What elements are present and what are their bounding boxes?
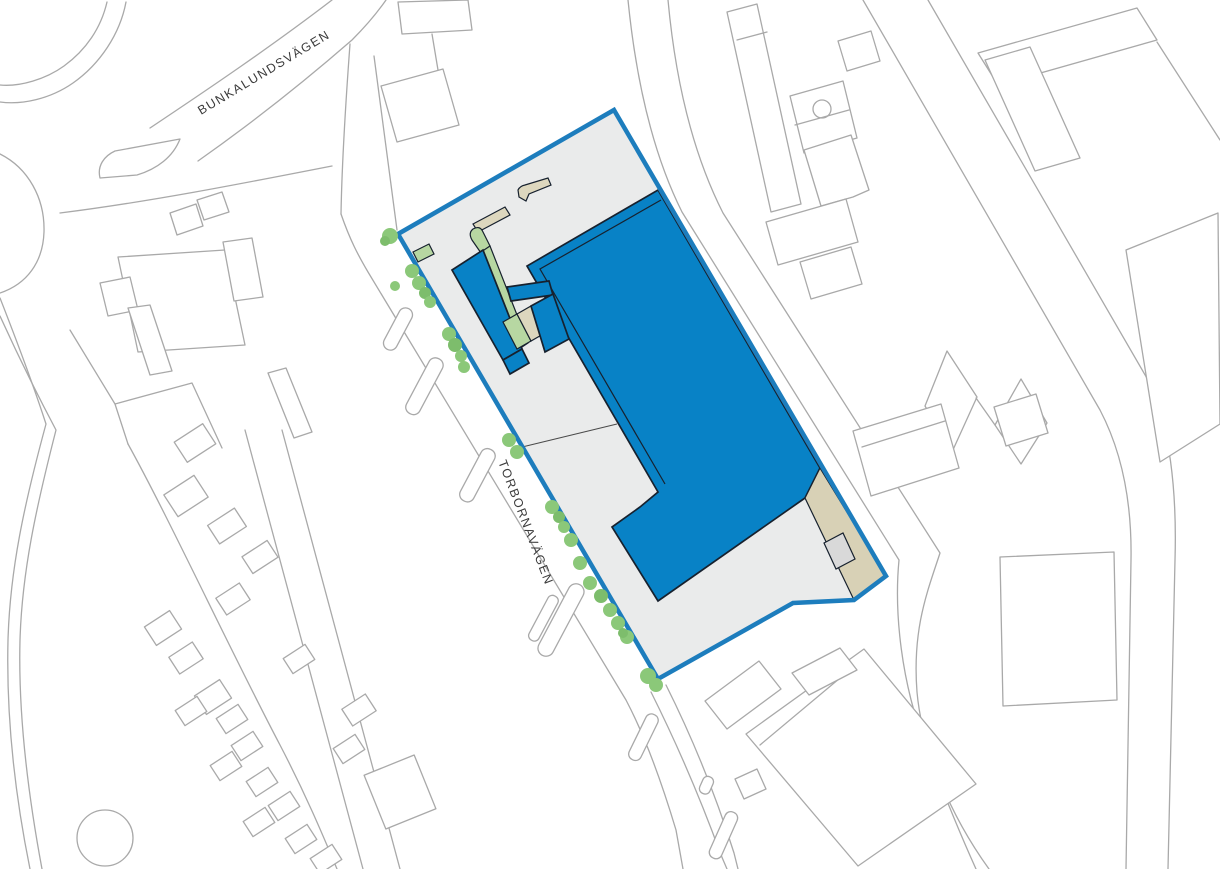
villa-outline xyxy=(342,694,376,726)
tree-icon xyxy=(611,616,625,630)
tree-icon xyxy=(380,236,390,246)
road-line xyxy=(0,316,56,869)
building-outline xyxy=(398,0,472,34)
tree-icon xyxy=(583,576,597,590)
site-plan-canvas: BUNKALUNDSVÄGEN TORBORNAVÄGEN xyxy=(0,0,1220,869)
road-line xyxy=(0,2,126,103)
tree-icon xyxy=(564,533,578,547)
tree-icon xyxy=(448,338,462,352)
parking-island xyxy=(707,810,739,861)
tree-icon xyxy=(618,628,628,638)
tree-icon xyxy=(594,589,608,603)
villa-outline xyxy=(333,734,365,763)
parking-island xyxy=(627,712,661,763)
building-outline xyxy=(727,4,801,212)
round-feature xyxy=(77,810,133,866)
villa-outline xyxy=(216,583,250,615)
building-outline xyxy=(268,368,312,438)
building-outline xyxy=(735,769,766,799)
villa-outline xyxy=(174,424,216,463)
villa-outline xyxy=(164,475,208,516)
building-outline xyxy=(994,394,1048,446)
tree-icon xyxy=(424,296,436,308)
villa-outline xyxy=(208,508,247,544)
tree-icon xyxy=(458,361,470,373)
building-outline xyxy=(170,204,203,235)
villa-outline xyxy=(169,642,203,674)
villa-outline xyxy=(283,644,315,673)
building-link-line xyxy=(432,34,438,70)
tree-icon xyxy=(405,264,419,278)
parking-island xyxy=(381,305,415,352)
building-outline xyxy=(1126,213,1220,462)
tree-icon xyxy=(573,556,587,570)
context-buildings-west xyxy=(100,192,312,438)
traffic-island xyxy=(99,139,180,178)
tree-icon xyxy=(502,433,516,447)
site-plan-drawing: BUNKALUNDSVÄGEN TORBORNAVÄGEN xyxy=(0,0,1220,869)
villa-outline xyxy=(285,824,317,853)
road-line xyxy=(341,44,350,214)
villa-outline xyxy=(216,704,248,733)
street-label-bunkalundsvagen: BUNKALUNDSVÄGEN xyxy=(195,28,332,118)
villa-outline xyxy=(144,611,181,646)
tree-icon xyxy=(455,350,467,362)
road-line xyxy=(0,298,46,869)
parking-island xyxy=(457,446,497,504)
villa-outline xyxy=(242,540,278,573)
site-area xyxy=(398,110,886,679)
road-line xyxy=(150,0,332,128)
building-link-line xyxy=(976,398,995,425)
building-outline xyxy=(838,31,880,71)
building-outline xyxy=(1000,552,1117,706)
tree-icon xyxy=(649,678,663,692)
building-outline xyxy=(746,649,976,866)
road-line xyxy=(0,2,107,85)
building-outline xyxy=(853,404,959,496)
villa-outline xyxy=(243,807,275,836)
tree-icon xyxy=(603,603,617,617)
parcel-line xyxy=(70,330,128,444)
villa-outline xyxy=(310,844,342,869)
villa-outline xyxy=(246,767,278,796)
building-outline xyxy=(364,755,436,829)
road-line xyxy=(198,0,386,161)
tree-icon xyxy=(558,521,570,533)
tree-icon xyxy=(390,281,400,291)
building-outline xyxy=(381,69,459,142)
villa-outline xyxy=(268,791,300,820)
tree-icon xyxy=(510,445,524,459)
roundabout-arc xyxy=(0,154,44,293)
context-buildings-north xyxy=(381,0,472,142)
villas-southwest xyxy=(77,424,436,869)
road-line xyxy=(1157,42,1220,140)
building-outline xyxy=(197,192,229,220)
